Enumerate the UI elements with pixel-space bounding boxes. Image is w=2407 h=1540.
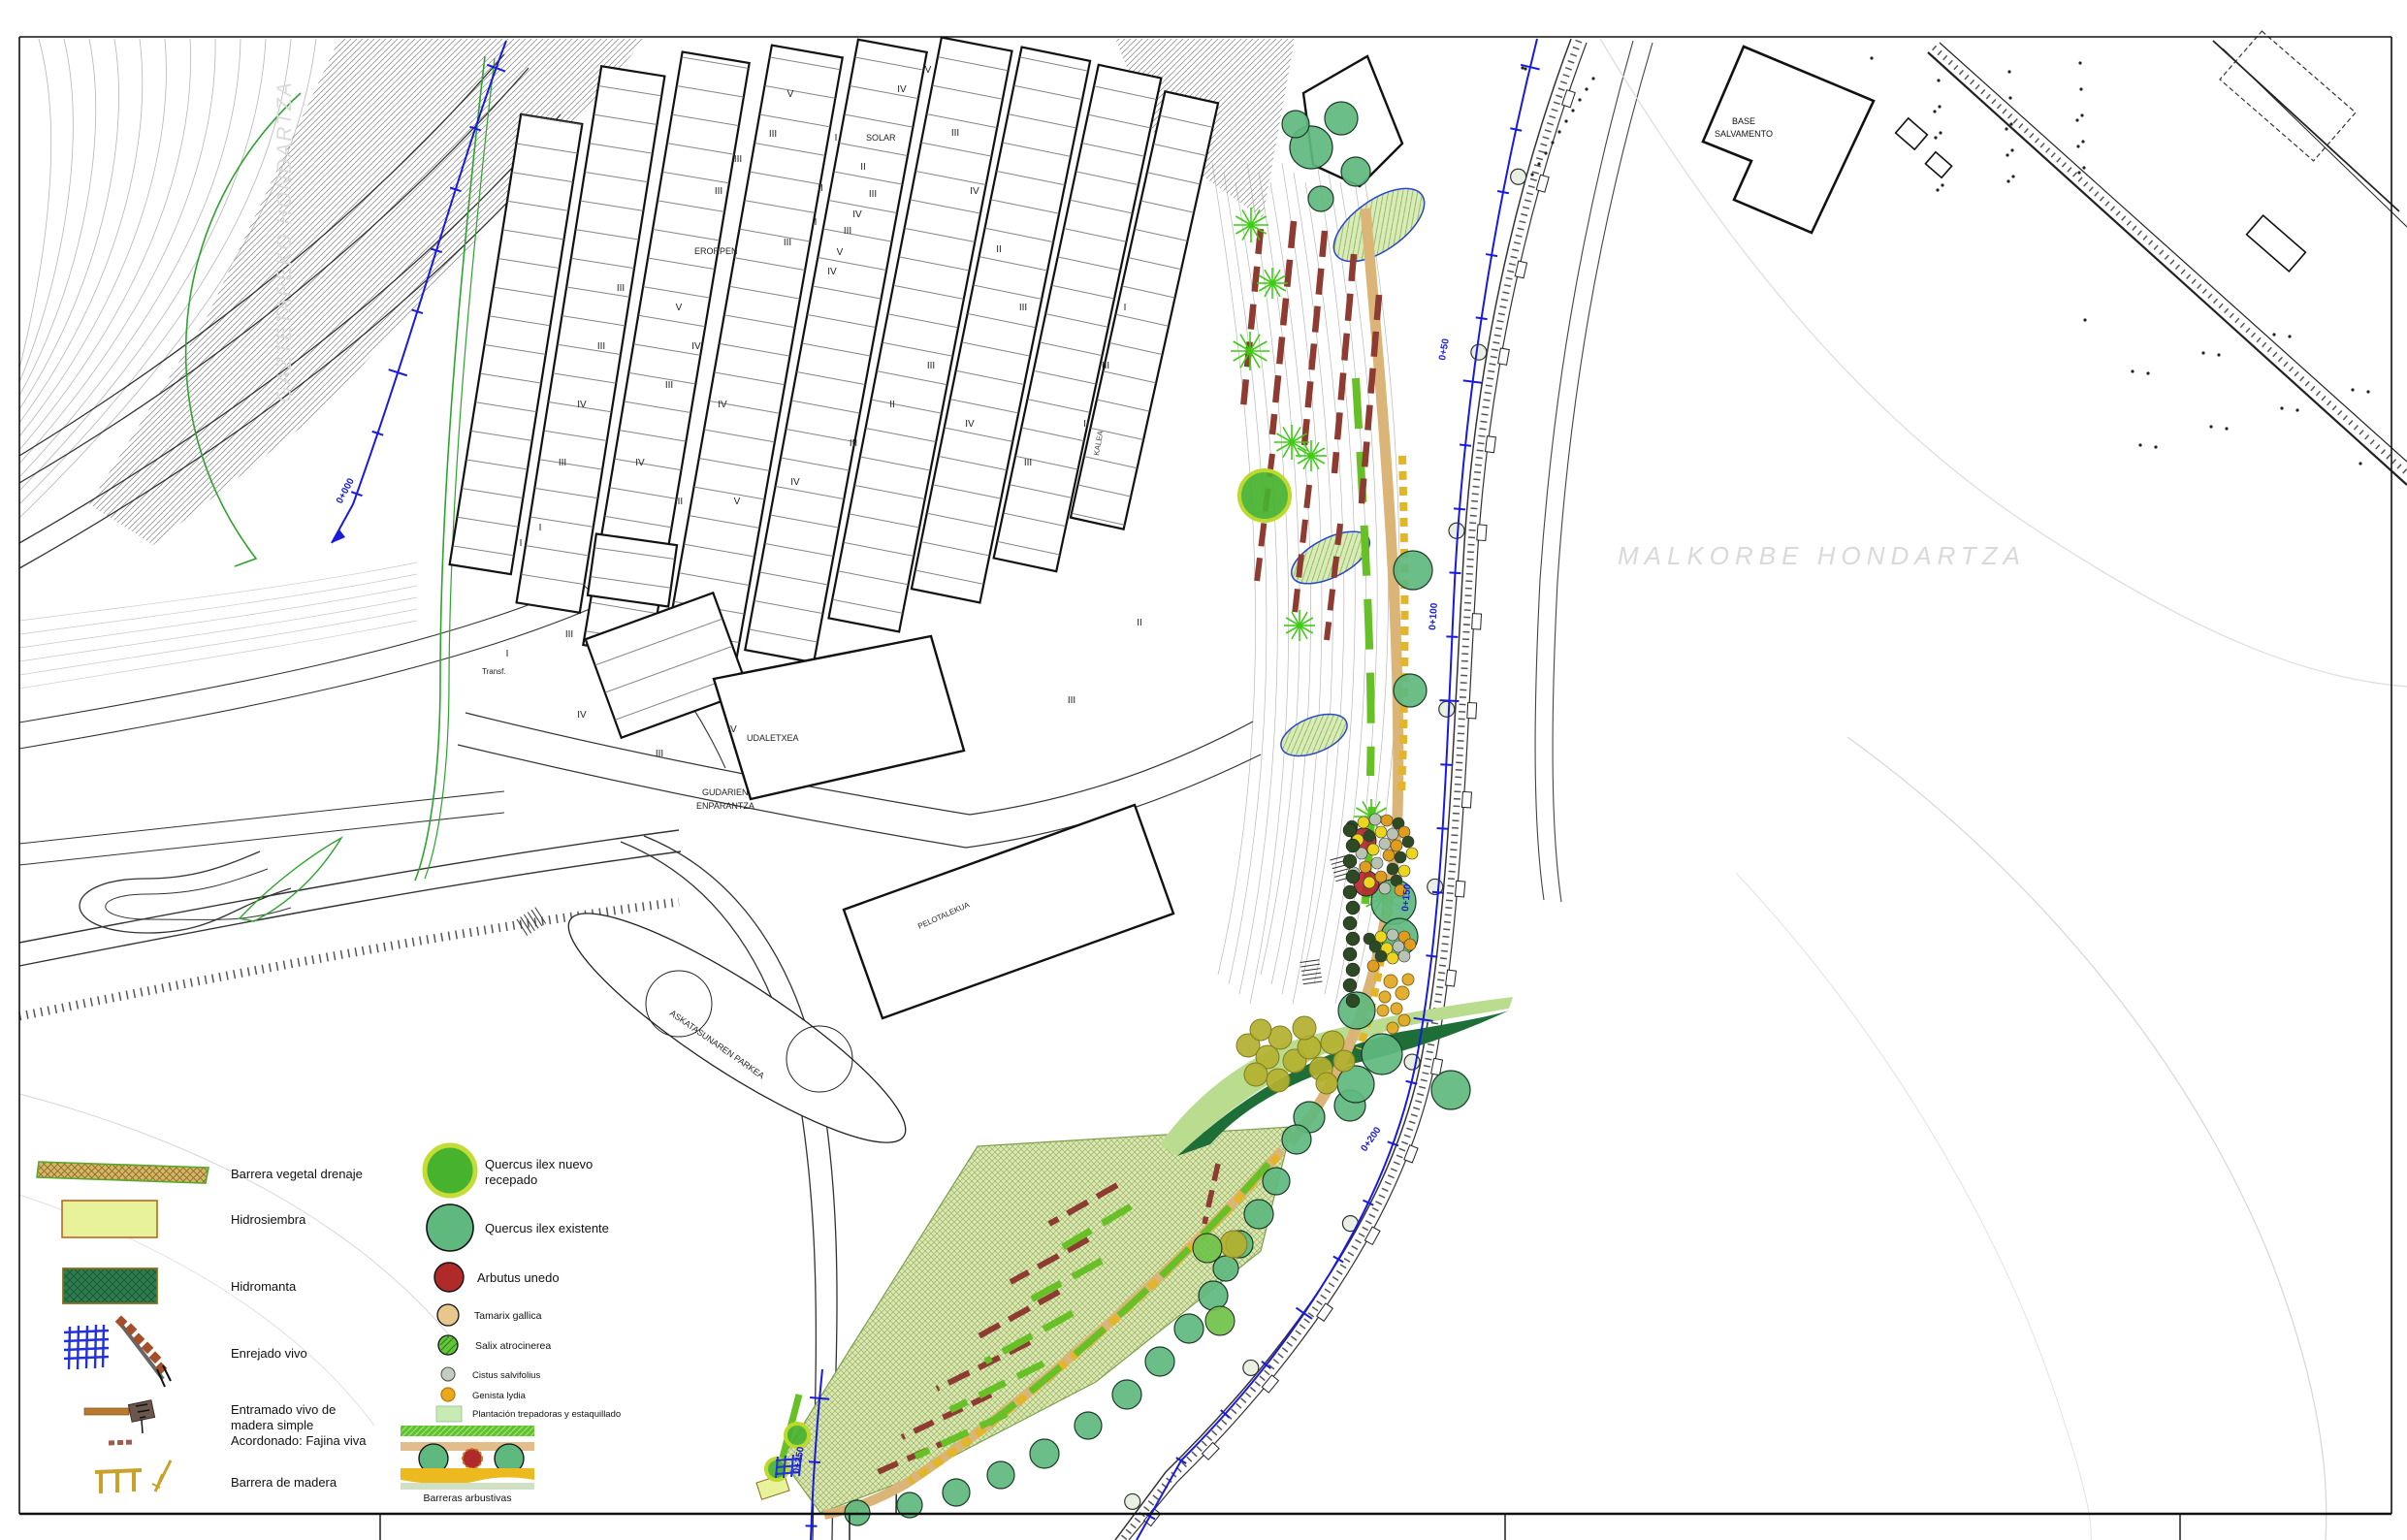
legend-swatch-enrejado-vivo — [64, 1315, 171, 1387]
map-label: MALKORBE HONDARTZA — [1618, 541, 2026, 570]
legend-symbol-genista-lydia — [441, 1388, 455, 1401]
map-label: SOLAR — [866, 133, 896, 143]
tree-symbol — [1362, 1034, 1402, 1075]
parcel-floor-numeral: III — [844, 226, 851, 237]
shrub-dot — [1346, 901, 1360, 914]
drainage-planting-pocket — [1275, 706, 1353, 764]
map-label: SALVAMENTO — [1715, 129, 1773, 139]
shrub-dot — [1379, 838, 1391, 850]
tree-symbol — [1384, 975, 1397, 988]
legend-symbol-salix-atrocinerea — [438, 1335, 458, 1355]
tree-symbol — [1398, 1014, 1410, 1026]
parcel-floor-numeral: I — [815, 217, 818, 228]
parcel-floor-numeral: IV — [965, 419, 975, 430]
promenade-bench — [1472, 614, 1482, 629]
tree-symbol — [1112, 1380, 1141, 1409]
tree-symbol — [1199, 1281, 1228, 1310]
tree-symbol — [1174, 1314, 1203, 1343]
legend-label: Enrejado vivo — [231, 1346, 307, 1361]
legend-swatch-barrera-vegetal-drenaje — [37, 1162, 209, 1183]
grass-shrub — [1296, 440, 1327, 471]
legend-symbol-plantacion-trepadoras — [436, 1406, 462, 1422]
tree-symbol — [943, 1479, 970, 1506]
shrub-dot — [1346, 932, 1360, 946]
promenade-bench — [1477, 525, 1487, 541]
parcel-floor-numeral: V — [925, 65, 932, 76]
parcel-floor-numeral: IV — [827, 267, 837, 277]
promenade-bench — [1536, 175, 1549, 192]
legend-label: Hidromanta — [231, 1279, 297, 1294]
parcel-floor-numeral: III — [734, 154, 742, 165]
pelota-court-building — [844, 805, 1173, 1018]
parcel-floor-numeral: III — [951, 128, 959, 139]
map-label: UDALETXEA — [747, 733, 799, 743]
stairs — [1300, 960, 1323, 984]
parcel-floor-numeral: III — [784, 238, 791, 248]
parcel-floor-numeral: III — [675, 497, 683, 507]
chainage-label: 0+50 — [1437, 337, 1452, 362]
tree-symbol — [1075, 1412, 1102, 1439]
legend-label: Quercus ilex nuevo — [485, 1157, 593, 1171]
chainage-label: 0+100 — [1428, 602, 1440, 630]
parcel-floor-numeral: I — [1124, 303, 1127, 313]
parcel-floor-numeral: I — [506, 649, 509, 659]
legend-label: recepado — [485, 1172, 537, 1187]
rescue-base-building — [1703, 47, 1874, 233]
parcel-floor-numeral: V — [837, 247, 844, 258]
tree-symbol — [1267, 1069, 1290, 1092]
parcel-floor-numeral: I — [539, 523, 542, 533]
site-plan-drawing: GAZTETAPEKO HONDARTZAMALKORBE HONDARTZAB… — [0, 0, 2407, 1540]
parcel-floor-numeral: III — [1068, 695, 1075, 706]
grass-shrub — [1257, 268, 1288, 299]
legend: Barrera vegetal drenaje Hidrosiembra Hid… — [37, 1145, 621, 1504]
legend-label: Arbutus unedo — [477, 1270, 560, 1285]
tree-symbol — [1244, 1063, 1268, 1086]
legend-label: madera simple — [231, 1418, 313, 1432]
map-label: GAZTETAPEKO HONDARTZA — [273, 80, 296, 402]
legend-caption: Barreras arbustivas — [423, 1492, 511, 1504]
shrub-dot — [1369, 814, 1381, 825]
tree-symbol — [1293, 1016, 1316, 1040]
parcel-floor-numeral: III — [1024, 458, 1032, 468]
pier-structure-dashed — [2220, 31, 2356, 161]
shrub-dot — [1367, 960, 1379, 972]
parcel-floor-numeral: IV — [577, 710, 587, 721]
tree-symbol — [1379, 991, 1391, 1003]
tree-symbol — [1333, 1050, 1355, 1072]
parcel-floor-numeral: III — [565, 629, 573, 640]
parcel-floor-numeral: IV — [852, 209, 862, 220]
shrub-dot — [1343, 823, 1357, 837]
promenade-bench — [1203, 1442, 1220, 1460]
legend-label: Salix atrocinerea — [475, 1340, 551, 1352]
shrub-dot — [1379, 882, 1391, 894]
parcel-floor-numeral: IV — [970, 186, 979, 197]
shrub-dot — [1402, 836, 1414, 848]
promenade-bench — [1317, 1303, 1333, 1321]
parcel-floor-numeral: II — [860, 162, 866, 173]
promenade-bench — [1515, 261, 1526, 278]
shrub-dot — [1358, 817, 1369, 828]
tree-symbol — [786, 1424, 809, 1447]
legend-label: Plantación trepadoras y estaquillado — [472, 1409, 621, 1420]
drainage-planting-pocket — [1322, 175, 1436, 276]
map-label: ERORPEN — [694, 246, 738, 256]
shrub-dot — [1343, 979, 1357, 992]
tree-symbol — [1316, 1073, 1337, 1094]
parcel-floor-numeral: III — [1019, 303, 1027, 313]
map-label: ENPARANTZA — [696, 801, 754, 811]
tree-symbol — [1325, 102, 1358, 135]
parcel-floor-numeral: III — [769, 129, 777, 140]
parcel-floor-numeral: III — [617, 283, 625, 294]
parcel-floor-numeral: V — [787, 89, 794, 100]
parcel-floor-numeral: II — [818, 183, 823, 194]
shrub-dot — [1346, 839, 1360, 852]
tree-symbol — [1145, 1347, 1174, 1376]
shrub-dot — [1375, 826, 1387, 838]
legend-swatch-hidromanta — [63, 1268, 157, 1303]
shrub-dot — [1364, 877, 1375, 888]
shrub-dot — [1387, 828, 1398, 840]
legend-label: Quercus ilex existente — [485, 1221, 609, 1235]
parcel-floor-numeral: III — [665, 380, 673, 391]
tree-symbol — [1205, 1306, 1235, 1335]
tree-symbol — [1263, 1168, 1290, 1195]
legend-symbol-quercus-ilex-existente — [427, 1204, 473, 1251]
legend-symbol-arbutus-unedo — [434, 1263, 464, 1292]
shrub-dot — [1395, 851, 1406, 863]
map-label: Transf. — [482, 667, 506, 676]
legend-label: Hidrosiembra — [231, 1212, 306, 1227]
tree-symbol — [1244, 1200, 1273, 1229]
plan-sheet: GAZTETAPEKO HONDARTZAMALKORBE HONDARTZAB… — [0, 0, 2407, 1540]
shrub-dot — [1404, 939, 1416, 950]
tree-symbol — [1394, 674, 1427, 707]
parcel-floor-numeral: III — [1102, 361, 1109, 371]
shrub-dot — [1343, 854, 1357, 868]
promenade-tree — [1243, 1360, 1259, 1375]
parcel-floor-numeral: IV — [790, 477, 800, 488]
tree-symbol — [1308, 186, 1333, 211]
tree-symbol — [1387, 1022, 1398, 1034]
tree-symbol — [1250, 1019, 1271, 1041]
legend-label: Genista lydia — [472, 1391, 527, 1401]
parcel-floor-numeral: I — [520, 538, 523, 549]
parcel-floor-numeral: III — [927, 361, 935, 371]
shrub-dot — [1367, 844, 1379, 855]
legend-label: Barrera vegetal drenaje — [231, 1167, 363, 1181]
tree-symbol — [1268, 1026, 1292, 1049]
shrub-dot — [1375, 871, 1387, 882]
promenade-bench — [1455, 881, 1464, 897]
tree-symbol — [987, 1461, 1014, 1489]
tree-symbol — [1030, 1439, 1059, 1468]
legend-label: Barrera de madera — [231, 1475, 337, 1490]
parcel-floor-numeral: II — [1137, 618, 1142, 628]
shrub-dot — [1343, 885, 1357, 899]
legend-symbol-tamarix-gallica — [437, 1304, 459, 1326]
promenade-tree — [1471, 344, 1487, 360]
parcel-floor-numeral: IV — [635, 458, 645, 468]
parcel-floor-numeral: IV — [897, 84, 907, 95]
shrub-dot — [1375, 950, 1387, 962]
parcel-floor-numeral: IV — [577, 400, 587, 410]
legend-label: Entramado vivo de — [231, 1402, 336, 1417]
shrub-dot — [1381, 815, 1393, 826]
parcel-floor-numeral: II — [1083, 419, 1089, 430]
parcel-floor-numeral: V — [734, 497, 741, 507]
parcel-floor-numeral: III — [715, 186, 722, 197]
parcel-floor-numeral: III — [559, 458, 566, 468]
parcel-floor-numeral: III — [656, 749, 663, 759]
parcel-floor-numeral: I — [835, 133, 838, 144]
shrub-dot — [1398, 950, 1410, 962]
parcel-floor-numeral: IV — [727, 724, 737, 735]
shrub-dot — [1387, 952, 1398, 964]
parcel-floor-numeral: V — [676, 303, 683, 313]
parcel-floor-numeral: IV — [718, 400, 727, 410]
promenade-tree — [1125, 1493, 1140, 1509]
parcel-floor-numeral: II — [996, 244, 1002, 255]
tree-symbol — [1396, 986, 1409, 1000]
small-building — [1925, 152, 1951, 178]
chainage-label: 0+200 — [1359, 1125, 1383, 1154]
promenade-bench — [1262, 1375, 1278, 1393]
legend-swatch-entramado — [84, 1400, 155, 1443]
promenade-tree — [1511, 169, 1526, 184]
town-hall-building — [714, 636, 964, 799]
shrub-dot — [1387, 929, 1398, 941]
parcel-floor-numeral: II — [889, 400, 895, 410]
legend-swatch-barrera-madera — [95, 1460, 171, 1493]
legend-swatch-hidrosiembra — [62, 1201, 157, 1237]
tree-symbol — [1402, 974, 1414, 985]
tree-symbol — [1377, 1005, 1389, 1016]
legend-symbol-cistus-salvifolius — [441, 1367, 455, 1381]
map-label: BASE — [1732, 116, 1755, 126]
shrub-dot — [1387, 863, 1398, 875]
shrub-dot — [1346, 870, 1360, 883]
parcel-floor-numeral: IV — [691, 341, 701, 352]
shrub-dot — [1346, 963, 1360, 977]
shrub-dot — [1343, 947, 1357, 961]
shrub-dot — [1360, 861, 1371, 873]
tree-symbol — [1282, 111, 1309, 138]
small-building — [2247, 215, 2306, 272]
chainage-line — [1137, 39, 1537, 1540]
promenade-bench — [1467, 702, 1477, 718]
shrub-dot — [1364, 830, 1375, 842]
tree-symbol — [1341, 157, 1370, 186]
shrub-dot — [1391, 840, 1402, 851]
promenade-bench — [1446, 970, 1457, 986]
parcel-floor-numeral: III — [869, 189, 877, 200]
legend-swatch-fajina — [109, 1442, 134, 1443]
tree-symbol — [1391, 1003, 1402, 1014]
tree-symbol — [1239, 470, 1290, 521]
shrub-dot — [1371, 857, 1383, 869]
shrub-dot — [1346, 994, 1360, 1008]
tree-symbol — [1282, 1125, 1311, 1154]
promenade-bench — [1404, 1145, 1418, 1163]
tree-symbol — [1394, 551, 1432, 590]
legend-label: Cistus salvifolius — [472, 1370, 540, 1381]
legend-label: Acordonado: Fajina viva — [231, 1433, 367, 1448]
shrub-dot — [1398, 865, 1410, 877]
parcel-floor-numeral: III — [850, 438, 857, 449]
tree-symbol — [1193, 1234, 1222, 1263]
promenade-bench — [1461, 791, 1471, 808]
promenade-bench — [1562, 90, 1576, 108]
legend-symbol-quercus-ilex-nuevo — [425, 1145, 475, 1196]
tree-symbol — [1220, 1231, 1247, 1258]
promenade-bench — [1498, 348, 1510, 365]
legend-diagram-barreras-arbustivas — [401, 1426, 534, 1490]
promenade-bench — [1486, 436, 1496, 453]
legend-label: Tamarix gallica — [474, 1310, 542, 1322]
shrub-dot — [1343, 916, 1357, 930]
tree-symbol — [1431, 1071, 1470, 1109]
small-building — [1896, 118, 1928, 149]
parcel-floor-numeral: III — [597, 341, 605, 352]
shrub-dot — [1383, 850, 1395, 861]
promenade-tree — [1439, 701, 1455, 717]
shrub-dot — [1406, 848, 1418, 859]
map-label: GUDARIEN — [702, 787, 749, 797]
